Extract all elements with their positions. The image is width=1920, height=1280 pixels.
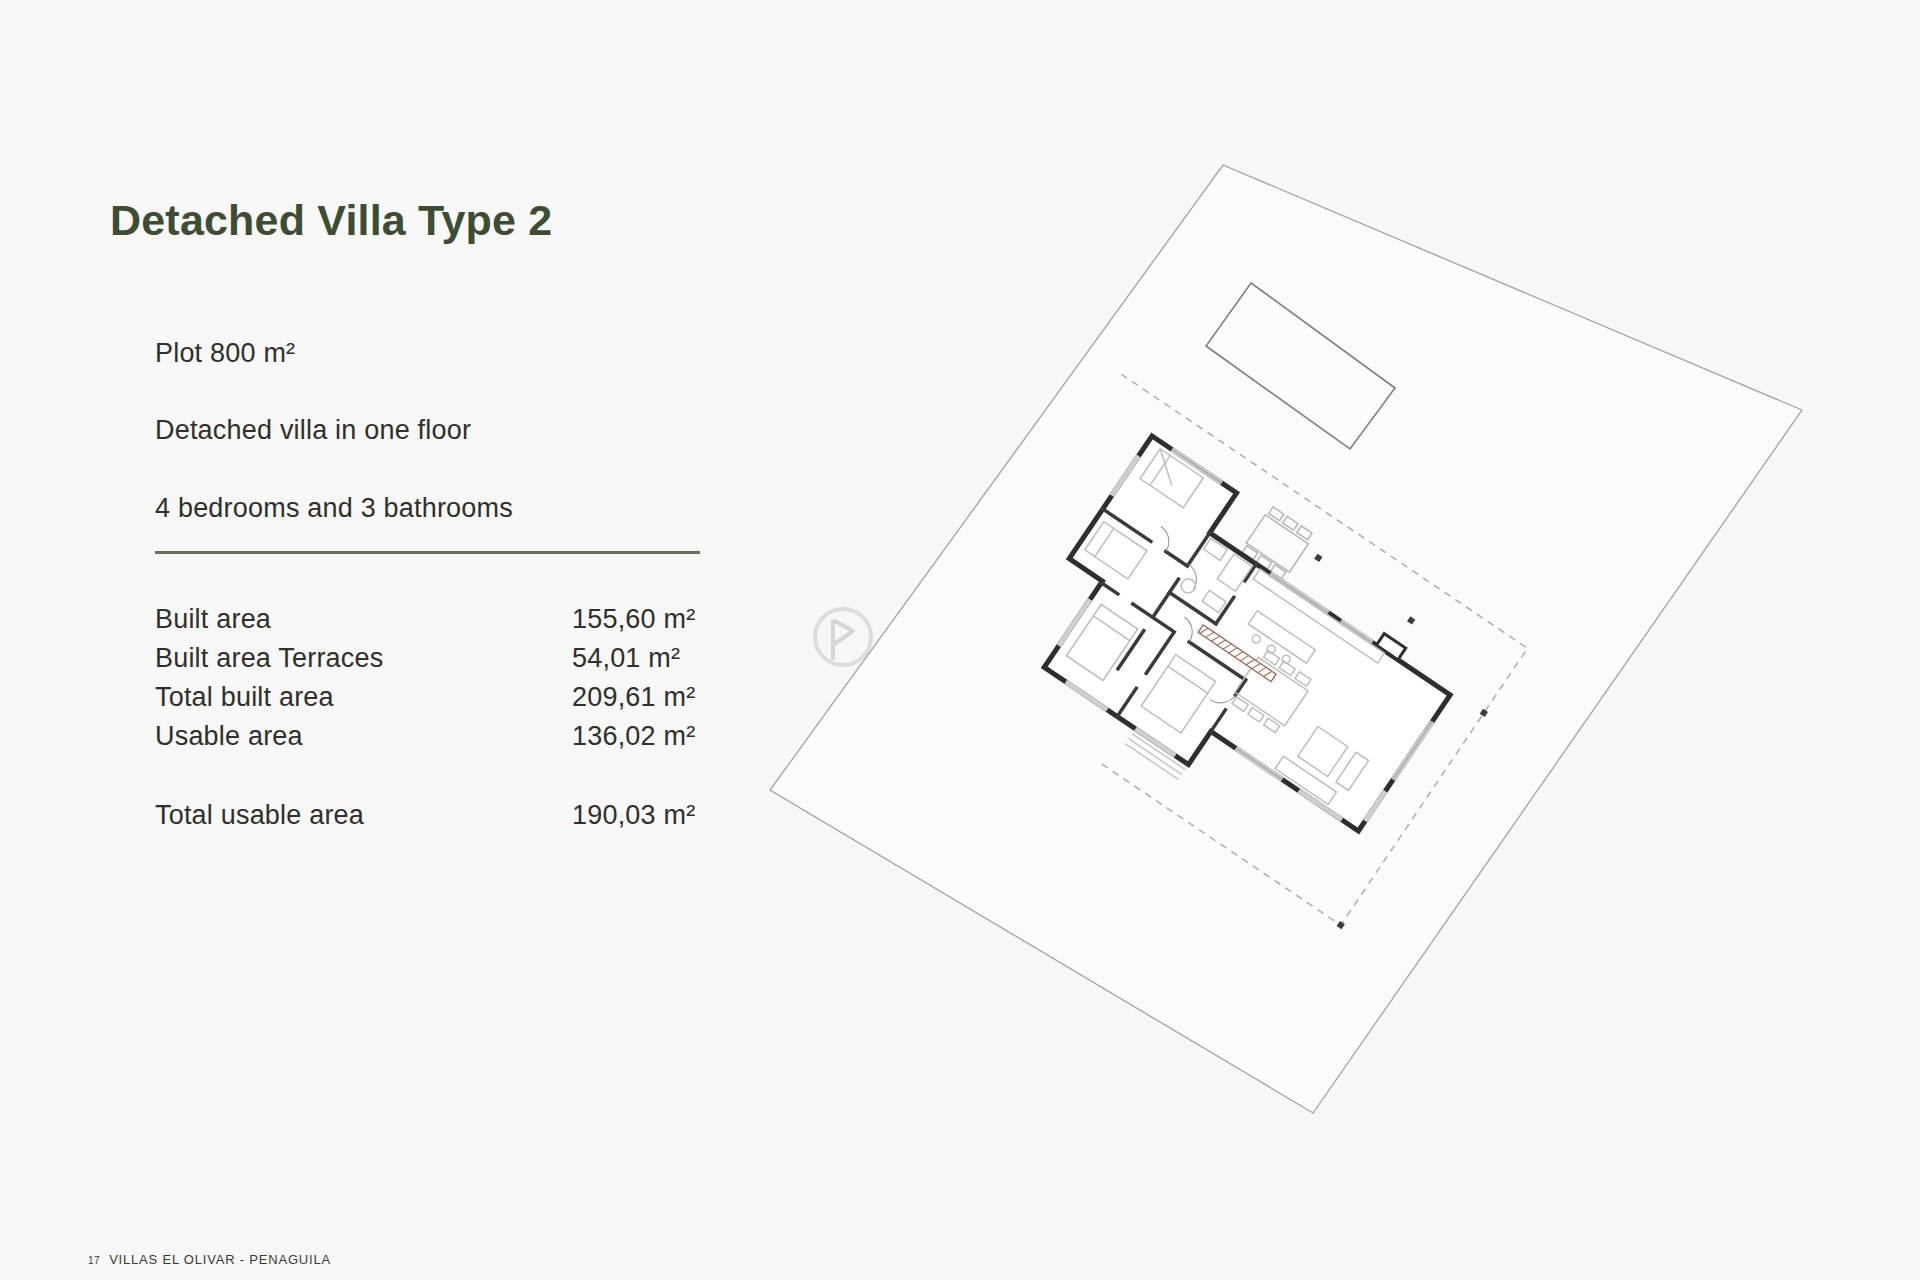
site-plan: [0, 0, 1920, 1280]
project-name: VILLAS EL OLIVAR - PENAGUILA: [109, 1252, 331, 1267]
watermark-logo: [815, 609, 871, 665]
brochure-page: Detached Villa Type 2 Plot 800 m² Detach…: [0, 0, 1920, 1280]
page-number: 17: [88, 1255, 100, 1266]
footer: 17 VILLAS EL OLIVAR - PENAGUILA: [88, 1252, 331, 1267]
site-plan-drawing: [0, 0, 1920, 1280]
